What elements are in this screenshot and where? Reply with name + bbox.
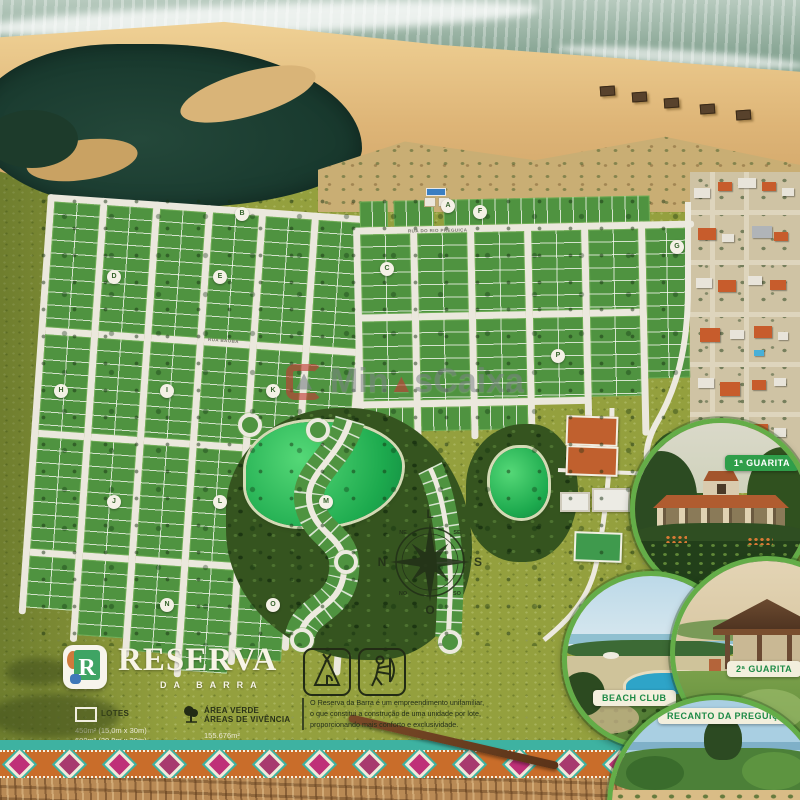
lot-block bbox=[136, 444, 190, 559]
pattern-diamond bbox=[109, 754, 130, 775]
tennis-court bbox=[565, 445, 618, 477]
watermark-logo-inner bbox=[296, 374, 312, 390]
village-building bbox=[698, 228, 716, 240]
gate-window bbox=[717, 484, 726, 494]
tree-canopy bbox=[626, 756, 684, 790]
lot-block bbox=[129, 563, 181, 654]
village-building bbox=[696, 278, 712, 288]
block-badge: P bbox=[551, 349, 565, 363]
block-badge: E bbox=[213, 270, 227, 284]
grass-shadow bbox=[6, 658, 70, 686]
lot-block bbox=[38, 334, 91, 433]
village-building bbox=[782, 188, 794, 196]
cul-de-sac bbox=[306, 418, 330, 442]
brand-subname: DA BARRA bbox=[160, 680, 277, 690]
pattern-diamond bbox=[309, 754, 330, 775]
block-badge: G bbox=[670, 240, 684, 254]
cul-de-sac bbox=[238, 413, 262, 437]
beach-hut bbox=[736, 109, 752, 120]
lot-block bbox=[30, 437, 84, 552]
village-building bbox=[720, 382, 740, 396]
tree-canopy bbox=[742, 752, 800, 790]
sand-islet bbox=[175, 54, 322, 135]
block-badge: H bbox=[54, 384, 68, 398]
watermark-logo-icon bbox=[286, 364, 322, 400]
flower-bed bbox=[747, 537, 773, 545]
village-building bbox=[752, 226, 772, 238]
block-badge: F bbox=[473, 205, 487, 219]
street-label-rio-preguica: RUA DO RIO PREGUIÇA bbox=[408, 227, 468, 233]
lot-block bbox=[26, 556, 76, 611]
gatehouse bbox=[424, 197, 436, 207]
village-building bbox=[748, 276, 762, 285]
flower-bed bbox=[665, 535, 687, 543]
lot-block bbox=[421, 406, 471, 431]
pattern-diamond bbox=[159, 754, 180, 775]
village-building bbox=[752, 380, 766, 390]
beach-hut bbox=[632, 91, 648, 102]
river-preguica bbox=[0, 44, 362, 208]
pattern-diamond bbox=[59, 754, 80, 775]
tree-icon bbox=[182, 705, 200, 723]
lot-column bbox=[588, 229, 641, 397]
brand-lockup: R RESERVA DA BARRA bbox=[62, 644, 277, 690]
masterplan-poster: L S O N NE SE SO NO RUA DO RIO PREGUIÇA … bbox=[0, 0, 800, 800]
village-building bbox=[774, 378, 786, 386]
pattern-diamond bbox=[209, 754, 230, 775]
cul-de-sac bbox=[438, 630, 462, 654]
beach-hut bbox=[700, 103, 716, 114]
lot-swatch bbox=[75, 707, 97, 722]
clubhouse-building bbox=[592, 488, 630, 512]
village-building bbox=[754, 326, 772, 338]
lot-block bbox=[531, 230, 583, 311]
archer-icon bbox=[358, 648, 406, 696]
inset-photo-recanto: RECANTO DA PREGUIÇA bbox=[607, 695, 800, 800]
village-building bbox=[738, 178, 756, 188]
beach-hut bbox=[664, 97, 680, 108]
gate-main-roof bbox=[653, 495, 789, 508]
inset-label-recanto: RECANTO DA PREGUIÇA bbox=[658, 708, 795, 724]
teepee-icon bbox=[303, 648, 351, 696]
pattern-diamond bbox=[9, 754, 30, 775]
village-building bbox=[698, 378, 714, 388]
lot-block bbox=[360, 201, 389, 228]
village-building bbox=[778, 332, 788, 340]
sports-court bbox=[573, 531, 622, 563]
village-building bbox=[762, 182, 776, 191]
block-badge: O bbox=[266, 598, 280, 612]
entrance-sign bbox=[426, 188, 446, 196]
village-building bbox=[718, 280, 736, 292]
lot-block bbox=[77, 559, 128, 638]
block-badge: N bbox=[160, 598, 174, 612]
cul-de-sac bbox=[334, 550, 358, 574]
inset-label-guarita1: 1ª GUARITA bbox=[725, 455, 799, 471]
watermark-part1: Min bbox=[330, 362, 389, 400]
umbrella bbox=[603, 652, 619, 659]
village-building bbox=[700, 328, 720, 342]
lot-block bbox=[590, 316, 642, 397]
watermark-text: Min▲sCaixa bbox=[330, 362, 524, 401]
village-building bbox=[694, 188, 710, 198]
village-building bbox=[774, 232, 788, 241]
block-badge: M bbox=[319, 495, 333, 509]
project-description: O Reserva da Barra é um empreendimento u… bbox=[302, 698, 488, 730]
beach-hut bbox=[600, 85, 616, 96]
block-badge: D bbox=[107, 270, 121, 284]
village-building bbox=[718, 182, 732, 191]
lot-block bbox=[417, 232, 469, 313]
lot-block bbox=[474, 231, 526, 312]
block-badge: J bbox=[107, 495, 121, 509]
tennis-court bbox=[565, 415, 618, 447]
pattern-diamond bbox=[559, 754, 580, 775]
block-badge: K bbox=[266, 384, 280, 398]
pattern-diamond bbox=[459, 754, 480, 775]
inset-label-guarita2: 2ª GUARITA bbox=[727, 661, 800, 677]
lot-block bbox=[91, 338, 144, 437]
watermark-triangle: ▲ bbox=[389, 368, 415, 398]
village-building bbox=[770, 280, 786, 290]
lagoon-small bbox=[490, 448, 548, 518]
brand-mark-letter: R bbox=[78, 655, 96, 681]
watermark: Min▲sCaixa bbox=[286, 362, 524, 401]
brand-logo-icon: R bbox=[62, 644, 108, 690]
brand-name: RESERVA bbox=[118, 644, 277, 677]
village-building bbox=[730, 330, 744, 339]
block-badge: L bbox=[213, 495, 227, 509]
watermark-part2: sCaixa bbox=[414, 362, 524, 400]
lot-block bbox=[645, 228, 690, 379]
green-area-label-1: ÁREA VERDE bbox=[204, 706, 259, 715]
pattern-diamond bbox=[259, 754, 280, 775]
block-badge: B bbox=[235, 207, 249, 221]
clubhouse-building bbox=[560, 492, 590, 512]
brand-text: RESERVA DA BARRA bbox=[118, 644, 277, 690]
block-badge: C bbox=[380, 262, 394, 276]
green-area-label-2: ÁREAS DE VIVÊNCIA bbox=[204, 715, 290, 724]
lot-column bbox=[531, 230, 584, 398]
garden-ground bbox=[612, 790, 800, 800]
pattern-diamond bbox=[359, 754, 380, 775]
village-building bbox=[754, 350, 764, 356]
block-badge: I bbox=[160, 384, 174, 398]
lot-block bbox=[588, 229, 640, 310]
block-badge: A bbox=[441, 199, 455, 213]
pattern-diamond bbox=[409, 754, 430, 775]
village-building bbox=[722, 234, 734, 242]
